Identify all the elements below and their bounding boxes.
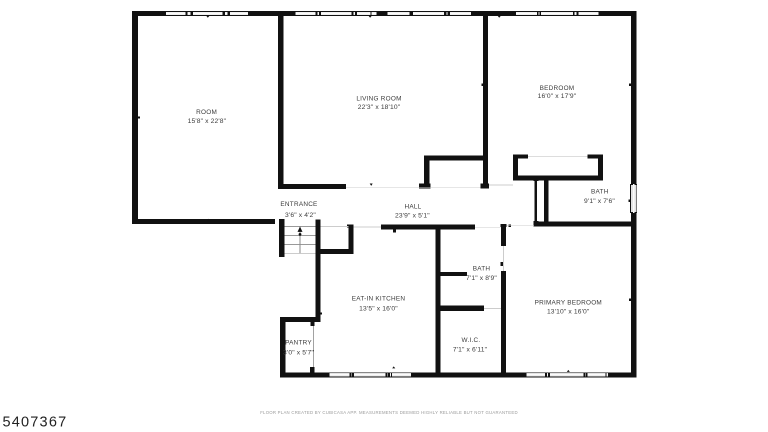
svg-text:PANTRY: PANTRY [285,340,312,347]
svg-text:3'0" x 5'7": 3'0" x 5'7" [283,349,314,356]
svg-text:22'3" x 18'10": 22'3" x 18'10" [358,104,401,111]
svg-text:W.I.C.: W.I.C. [462,337,481,344]
svg-text:ROOM: ROOM [196,109,217,116]
svg-text:16'0" x 17'9": 16'0" x 17'9" [538,93,577,100]
svg-text:BATH: BATH [473,266,491,273]
svg-text:BEDROOM: BEDROOM [540,85,575,92]
svg-text:3'6" x 4'2": 3'6" x 4'2" [285,212,316,219]
svg-text:PRIMARY BEDROOM: PRIMARY BEDROOM [535,299,602,306]
svg-text:23'9" x 5'1": 23'9" x 5'1" [395,213,430,220]
svg-text:5407367: 5407367 [3,415,68,431]
svg-text:9'1" x 7'6": 9'1" x 7'6" [584,198,615,205]
svg-text:15'8" x 22'8": 15'8" x 22'8" [188,118,227,125]
svg-text:13'5" x 16'0": 13'5" x 16'0" [359,305,398,312]
svg-text:FLOOR PLAN CREATED BY CUBICASA: FLOOR PLAN CREATED BY CUBICASA APP. MEAS… [260,410,518,415]
svg-text:BATH: BATH [591,189,609,196]
svg-text:13'10" x 16'0": 13'10" x 16'0" [547,308,590,315]
svg-text:EAT-IN KITCHEN: EAT-IN KITCHEN [352,296,406,303]
svg-text:HALL: HALL [405,203,422,210]
svg-text:7'1" x 6'11": 7'1" x 6'11" [453,346,488,353]
svg-text:LIVING ROOM: LIVING ROOM [356,96,401,103]
svg-text:ENTRANCE: ENTRANCE [280,201,317,208]
svg-text:7'1" x 8'9": 7'1" x 8'9" [466,275,497,282]
